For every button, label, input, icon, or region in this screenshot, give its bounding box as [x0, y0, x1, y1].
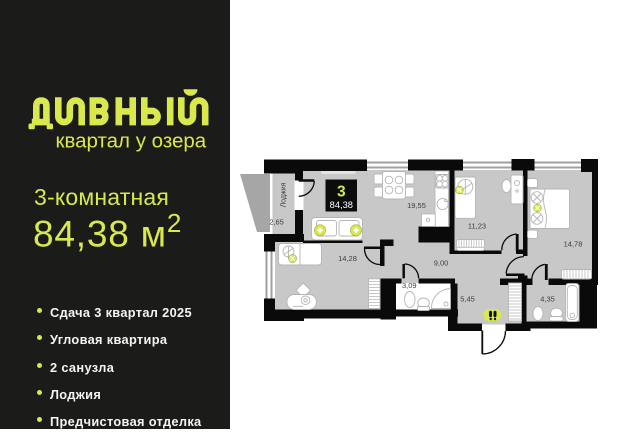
svg-text:3,09: 3,09	[402, 281, 417, 290]
svg-text:5,45: 5,45	[460, 295, 475, 304]
svg-text:Лоджия: Лоджия	[281, 182, 288, 207]
svg-text:3: 3	[337, 183, 346, 200]
svg-text:19,55: 19,55	[407, 201, 426, 210]
svg-text:84,38: 84,38	[330, 200, 353, 210]
svg-text:9,00: 9,00	[434, 259, 449, 268]
svg-text:11,23: 11,23	[468, 221, 486, 230]
svg-text:4,35: 4,35	[540, 295, 555, 304]
svg-text:2,65: 2,65	[269, 218, 284, 227]
svg-text:14,28: 14,28	[338, 254, 357, 263]
svg-text:14,78: 14,78	[564, 240, 583, 249]
